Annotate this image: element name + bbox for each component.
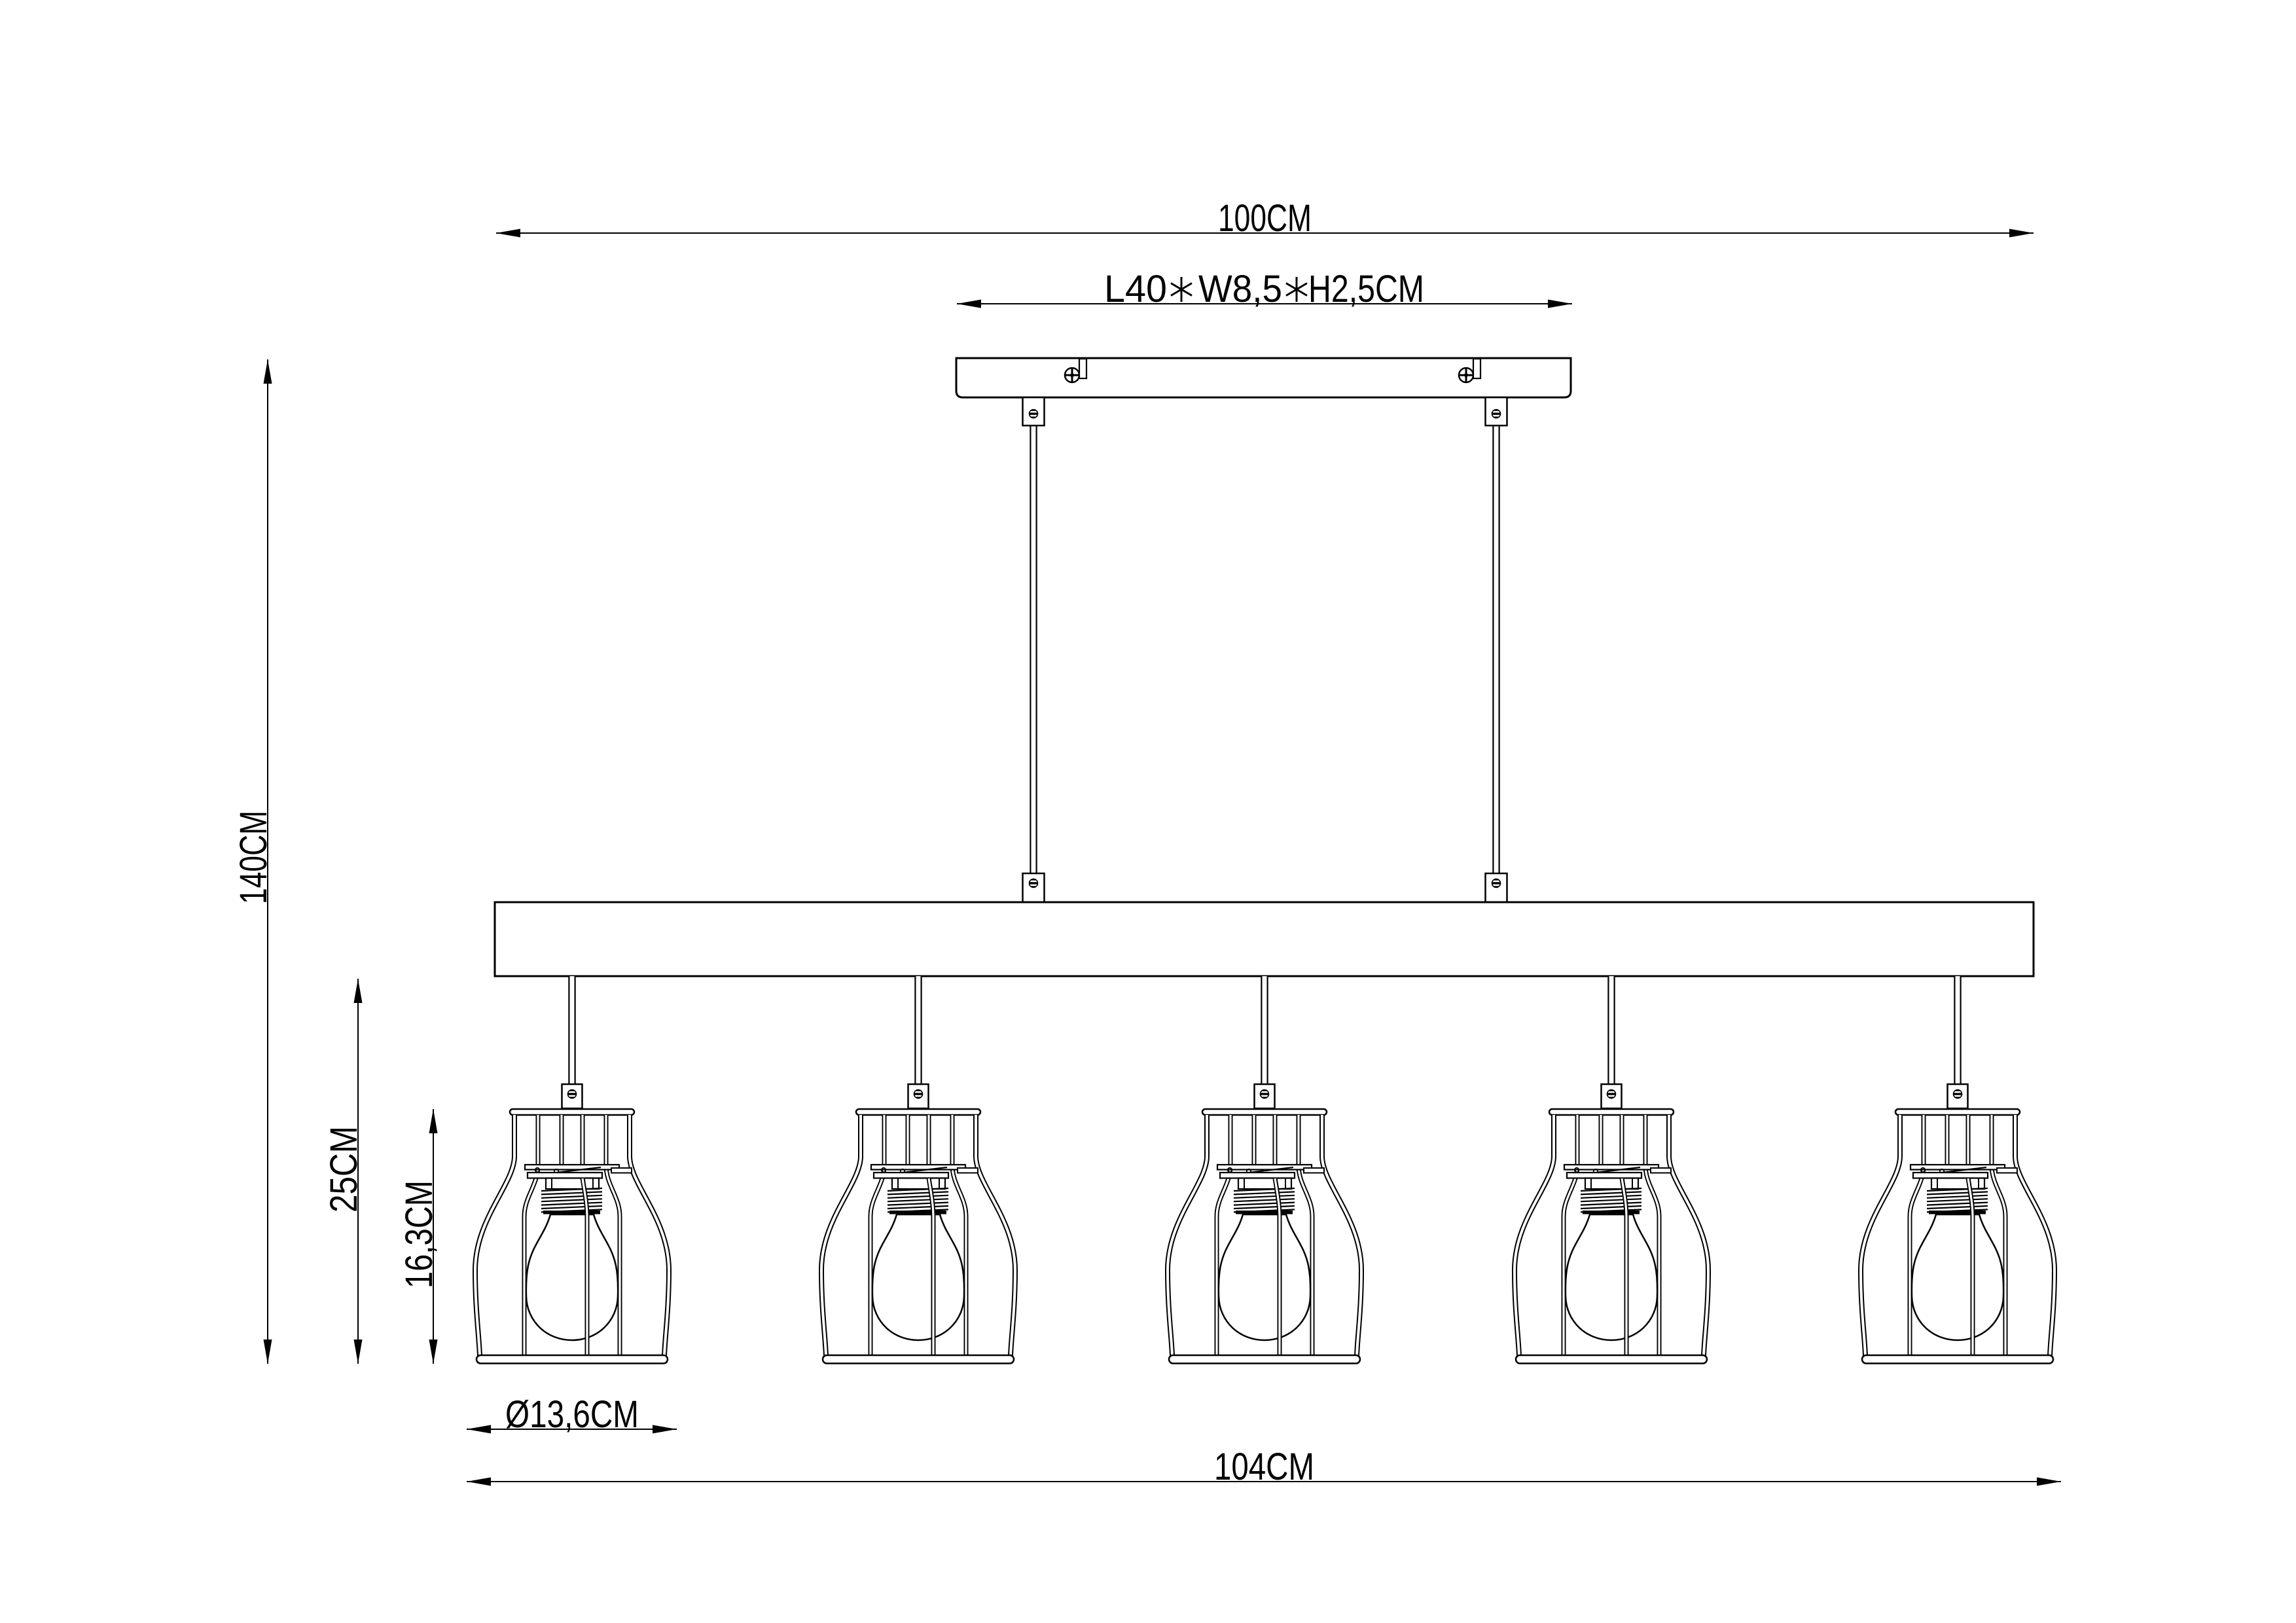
svg-text:25CM: 25CM bbox=[323, 1126, 365, 1213]
svg-text:104CM: 104CM bbox=[1214, 1446, 1314, 1488]
svg-text:L40: L40 bbox=[1104, 268, 1167, 310]
svg-text:100CM: 100CM bbox=[1218, 197, 1312, 240]
svg-text:16,3CM: 16,3CM bbox=[398, 1180, 440, 1288]
svg-text:Ø13,6CM: Ø13,6CM bbox=[505, 1393, 639, 1436]
svg-text:H2,5CM: H2,5CM bbox=[1308, 268, 1424, 310]
svg-text:140CM: 140CM bbox=[232, 811, 275, 904]
svg-text:W8,5: W8,5 bbox=[1198, 268, 1282, 310]
